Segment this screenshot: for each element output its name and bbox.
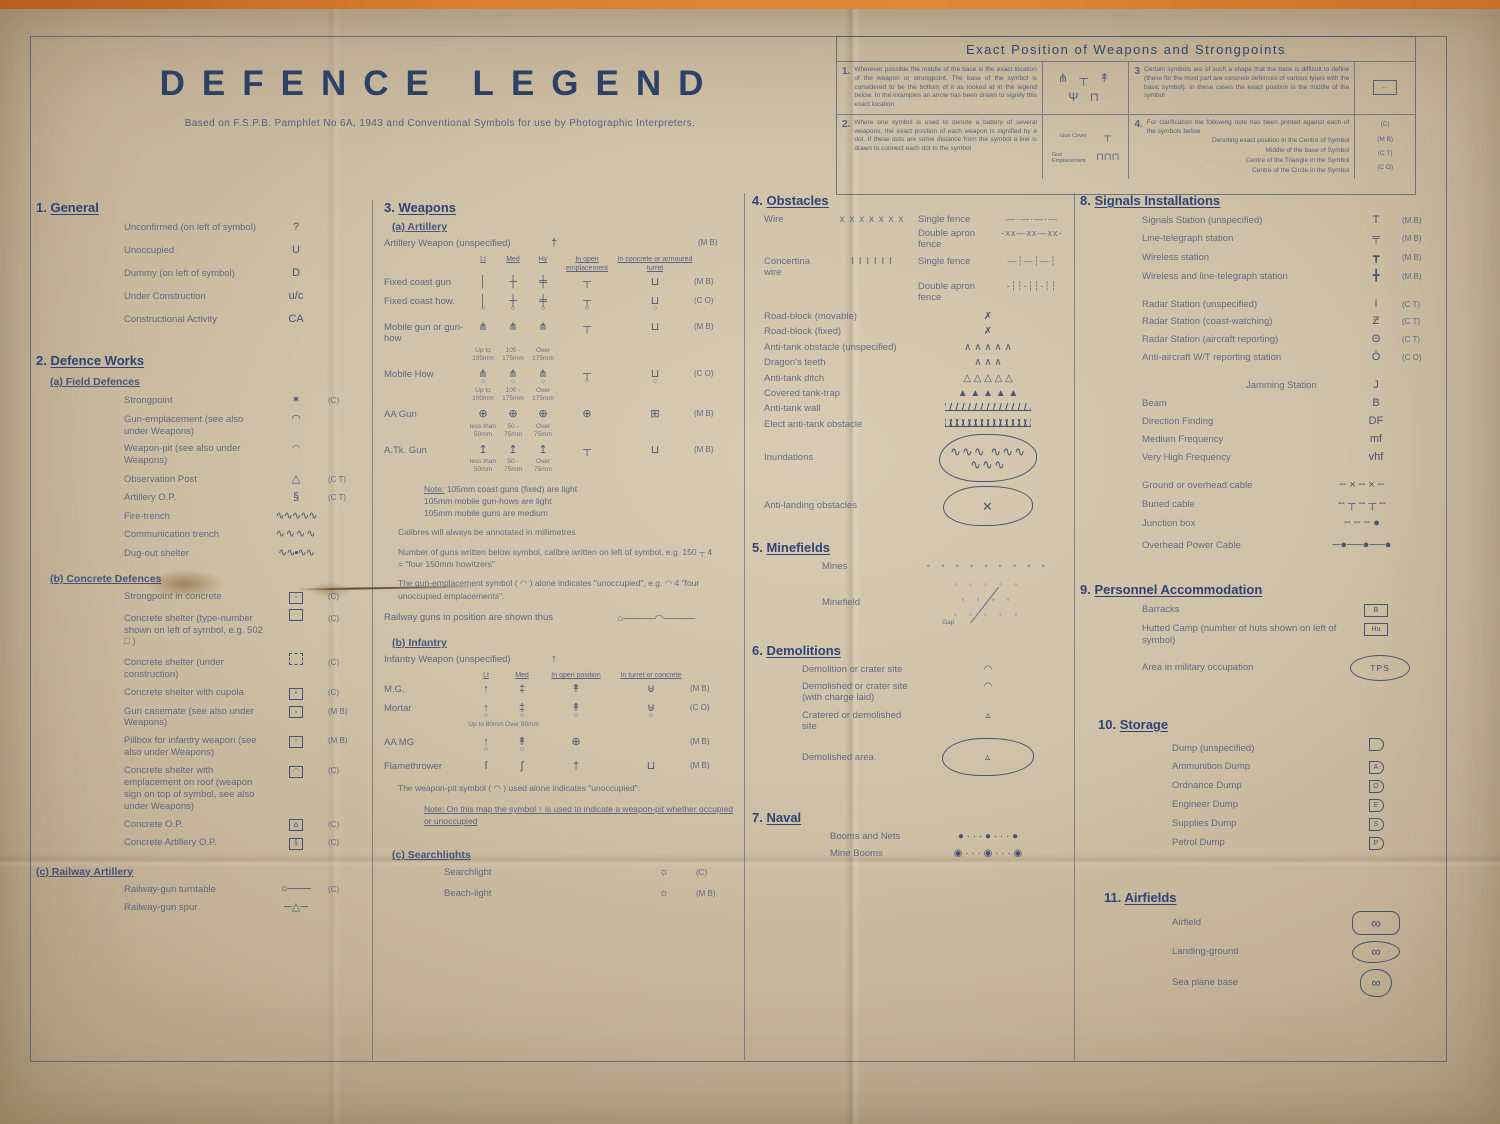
glyph-base: ○ [585,306,589,312]
section-number: 8. [1080,193,1091,208]
row-label: Concrete shelter with emplacement on roo… [124,765,264,813]
section-number: 10. [1098,717,1116,732]
mortar-turret-symbol: ⊎○ [612,703,690,719]
row-label: Railway-gun spur [124,902,264,914]
legend-row: Jamming StationJ [1080,379,1442,392]
row-symbol-cell [264,653,328,668]
glyph: ⊕ [538,409,547,420]
row-label: Line-telegraph station [1142,233,1350,245]
legend-row: BeamB [1080,397,1442,410]
row-code: (M B) [1402,253,1442,262]
glyph-base: ○ [653,379,657,385]
row-label: Petrol Dump [1172,837,1350,849]
dug-out-shelter-symbol: ∿∿▪∿∿ [264,546,328,559]
glyph-base: ○ [511,306,515,312]
legend-row: Covered tank-trap▲ ▲ ▲ ▲ ▲ [752,388,1068,399]
mg-med-symbol: ‡ [504,684,540,695]
mobile-how-hy-symbol: ⋔○ [528,369,558,385]
very-high-frequency-symbol: vhf [1350,451,1402,463]
legend-row: M.G.↑‡↟⊎(M B) [384,684,738,695]
column-divider-2 [744,193,745,1060]
mortar-open-symbol: ↟○ [540,703,612,719]
legend-row: AA Gun⊕⊕⊕⊕⊞(M B) [384,409,738,420]
title-block: DEFENCE LEGEND Based on F.S.P.B. Pamphle… [120,64,760,129]
booms-and-nets-symbol: ● · · · ● · · · ● [908,831,1068,842]
row-label: Concrete Artillery O.P. [124,837,264,849]
row-label: Demolished or crater site (with charge l… [802,681,908,704]
legend-row: Dragon's teeth∧ ∧ ∧ [752,357,1068,368]
calibre-label: 100 - 175mm [498,387,528,403]
legend-row: Communication trench∿∿∿∿ [36,527,370,541]
item-4-codes-cell: (C) (M B) (C T) (C O) [1355,115,1415,180]
row-symbol-cell: ∿∿∿ ∿∿∿ ∿∿∿ [908,434,1068,482]
legend-row: Concrete shelter (under construction)(C) [36,653,370,681]
calibre-label: 50 - 75mm [498,458,528,474]
calibre-label: less than 50mm [468,458,498,474]
row-symbol-cell: ▫ [264,590,328,604]
glyph: ⋔ [478,322,487,333]
legend-row: Dump (unspecified) [1080,738,1442,755]
exact-position-heading: Exact Position of Weapons and Strongpoin… [837,37,1415,62]
fixed-coast-how-med-symbol: ┼○ [498,296,528,312]
item-4-text: For clarification the following note has… [1147,119,1349,176]
exact-position-row-1: 1. Wherever possible the middle of the b… [837,62,1415,115]
column-signals-accommodation-storage-airfields: 8. Signals Installations Signals Station… [1080,193,1442,1002]
glyph: ⊔ [647,761,656,772]
legend-row: Radar Station (aircraft reporting)Θ(C T) [1080,333,1442,346]
section-title: Minefields [766,540,830,555]
legend-row: Artillery Weapon (unspecified)†(M B) [384,238,738,249]
section-title: Personnel Accommodation [1094,582,1262,597]
legend-row: Under Constructionu/c [36,290,370,303]
single-fence-label: Single fence [918,214,996,225]
flamethrower-med-symbol: ʃ [504,761,540,772]
hutted-camp-symbol: Hu [1364,623,1388,636]
legend-row: Concrete shelter (type-number shown on l… [36,609,370,649]
section-number: 7. [752,810,763,825]
glyph: ſ [485,761,487,772]
glyph: ⊔ [651,445,660,456]
calibre-label: Over 175mm [528,347,558,363]
glyph: ↥ [508,445,517,456]
glyph-base: ○ [541,306,545,312]
row-label: Dummy (on left of symbol) [124,268,264,280]
calibre-sub-labels: Up to 80mmOver 80mm [384,721,738,729]
row-code: (C T) [1402,317,1442,326]
legend-row: Railway-gun spur─△─ [36,900,370,914]
fire-trench-symbol: ∿∿∿∿∿ [264,509,328,522]
mine-booms-symbol: ◉ · · · ◉ · · · ◉ [908,848,1068,859]
landing-ground-symbol: ∞ [1352,941,1400,963]
fixed-coast-how-open-symbol: ┬○ [558,296,616,312]
glyph: ⋔ [508,322,517,333]
aa-mg-lt-symbol: ↑○ [468,737,504,753]
glyph-base: ○ [481,379,485,385]
subsection-infantry: (b) Infantry [392,637,738,649]
legend-row: Anti-tank wall [752,403,1068,414]
crater-with-charge-symbol: ◠ [908,681,1068,692]
airfield-symbol: ∞ [1352,911,1400,935]
legend-row: Observation Post△(C T) [36,472,370,486]
glyph: ⊎ [647,684,655,695]
row-label: Anti-aircraft W/T reporting station [1142,352,1350,364]
mines-symbol: ◦ ◦ ◦ ◦ ◦ ◦ ◦ ◦ ◦ [908,561,1068,572]
calibre-label: Up to 105mm [468,347,498,363]
glyph-base: ○ [511,379,515,385]
minefield-symbol: ◦ ◦ ◦ ◦ ◦ ◦ ◦ ◦ ◦ ◦ ◦ ◦ ◦ ◦ Gap [908,577,1068,629]
row-symbol-cell: › [264,705,328,719]
subsection-railway-artillery: (c) Railway Artillery [36,866,370,878]
legend-row: Fire-trench∿∿∿∿∿ [36,509,370,523]
legend-row: Ammunition DumpA [1080,760,1442,774]
column-divider-3 [1074,193,1075,1060]
radar-aircraft-reporting-symbol: Θ [1350,333,1402,345]
fixed-coast-gun-open-symbol: ┬ [558,277,616,288]
infantry-unspecified-symbol: ↑ [534,654,574,665]
legend-row: Mortar↑○‡○↟○⊎○(C O) [384,703,738,719]
legend-row: Engineer DumpE [1080,798,1442,812]
atk-gun-open-symbol: ┬ [558,445,616,456]
dragons-teeth-symbol: ∧ ∧ ∧ [908,357,1068,368]
calibre-label: Over 80mm [504,721,540,729]
gun-emplacement-row: Gun Emplacement⊓⊓⊓ [1052,152,1119,164]
glyph: ↥ [538,445,547,456]
jamming-station-symbol: J [1350,379,1402,391]
row-label: Strongpoint [124,395,264,407]
row-label: Concrete O.P. [124,819,264,831]
subsection-artillery: (a) Artillery [392,221,738,233]
row-label: Road-block (fixed) [764,326,908,337]
row-label: Dragon's teeth [764,357,908,368]
fixed-coast-how-turret-symbol: ⊔○ [616,296,694,312]
pillbox-symbol: ↑ [289,736,303,748]
row-code: (M B) [1402,234,1442,243]
wire-row: Wirex x x x x x xSingle fence—·—·—·— [752,214,1068,225]
anti-landing-obstacles-symbol: ✕ [943,486,1033,526]
legend-row: Ordnance DumpO [1080,779,1442,793]
column-header-med: Med [504,671,540,680]
mobile-how-med-symbol: ⋔○ [498,369,528,385]
row-symbol-cell: ∞ [1350,941,1402,963]
legend-row: Supplies DumpS [1080,817,1442,831]
railway-gun-in-position-symbol: ○────◠──── [574,612,738,625]
page-title: DEFENCE LEGEND [120,64,760,104]
position-code: (C T) [1378,149,1393,159]
glyph-base: ○ [520,747,524,753]
row-label: Radar Station (aircraft reporting) [1142,334,1350,346]
fixed-coast-how-hy-symbol: ╪○ [528,296,558,312]
calibre-label: Up to 80mm [468,721,504,729]
single-fence-symbol: —·—·—·— [996,214,1068,224]
double-apron-fence-label: Double apron fence [918,228,996,250]
glyph-base: ○ [520,713,524,719]
legend-row: Concrete shelter with emplacement on roo… [36,764,370,813]
row-symbol-cell: § [264,836,328,850]
exact-position-box: Exact Position of Weapons and Strongpoin… [836,36,1416,195]
beach-light-symbol: ☼ [632,887,696,899]
column-weapons: 3. Weapons (a) Artillery Artillery Weapo… [384,200,738,905]
legend-row: Flamethrowerſʃ†⊔(M B) [384,761,738,772]
photo-background-strip [0,0,1500,9]
inundations-symbol: ∿∿∿ ∿∿∿ ∿∿∿ [939,434,1037,482]
mine-dots-row: ◦ ◦ ◦ ◦ ◦ [908,607,1068,622]
item-3-text: Certain symbols are of such a shape that… [1144,66,1349,110]
legend-row: Unconfirmed (on left of symbol)? [36,221,370,234]
position-note-line: Centre of the Circle in the Symbol [1147,166,1349,176]
item-4-cell: 4. For clarification the following note … [1129,115,1355,180]
legend-row: BarracksB [1080,603,1442,617]
row-label: Wireless station [1142,252,1350,264]
row-label: Infantry Weapon (unspecified) [384,654,534,665]
barracks-symbol: B [1364,604,1388,617]
row-label: Searchlight [444,867,632,879]
legend-row: Petrol DumpP [1080,836,1442,850]
section-number: 9. [1080,582,1091,597]
row-code: (C) [328,592,370,601]
section-heading-personnel: 9. Personnel Accommodation [1080,582,1442,597]
row-symbol-cell: ✕ [908,486,1068,526]
shelter-roof-emplacement-symbol: ◠ [289,766,303,778]
legend-row: Mine Booms◉ · · · ◉ · · · ◉ [752,848,1068,859]
legend-row: Dug-out shelter∿∿▪∿∿ [36,546,370,560]
legend-row: Wireless station┳(M B) [1080,250,1442,264]
row-label: Buried cable [1142,499,1322,511]
row-label: Booms and Nets [830,831,908,842]
calibre-label: Over 175mm [528,387,558,403]
section-title: Airfields [1125,890,1177,905]
row-symbol-cell: Hu [1350,622,1402,636]
mine-dots-row: ◦ ◦ ◦ ◦ ◦ [908,577,1068,592]
gun-emplacement-label: Gun Emplacement [1052,152,1092,164]
sea-plane-base-symbol: ∞ [1360,969,1392,997]
subsection-concrete-defences: (b) Concrete Defences [50,573,370,585]
row-code: (M B) [696,889,738,898]
row-label: Sea plane base [1172,977,1350,989]
section-number: 4. [752,193,763,208]
section-number: 6. [752,643,763,658]
row-label: Road-block (movable) [764,311,908,322]
unoccupied-symbol: U [264,244,328,256]
row-label: Communication trench [124,529,264,541]
glyph: ⋔ [538,322,547,333]
glyph: ┼ [509,277,517,288]
glyph: ⊕ [508,409,517,420]
section-title: Obstacles [766,193,828,208]
calibre-label: Up to 100mm [468,387,498,403]
section-heading-defence-works: 2. Defence Works [36,353,370,368]
line-telegraph-station-symbol: ╤ [1350,232,1402,244]
section-number: 1. [36,200,47,215]
column-header-open-emplacement: In open emplacement [558,255,616,273]
mg-turret-symbol: ⊎ [612,684,690,695]
row-symbol-cell [264,609,328,624]
item-number: 3 [1134,66,1140,110]
row-label: Inundations [764,452,908,463]
glyph: ╪ [539,277,547,288]
page-subtitle: Based on F.S.P.B. Pamphlet No 6A, 1943 a… [120,118,760,129]
fixed-coast-gun-turret-symbol: ⊔ [616,277,694,288]
double-apron-fence-label: Double apron fence [918,281,996,303]
row-symbol-cell: A [1350,760,1402,774]
row-symbol-cell: ∞ [1350,969,1402,997]
position-code: (C) [1381,120,1390,130]
legend-row: Buried cable╌ ┬ ╌ ┬ ╌ [1080,497,1442,511]
legend-row: Beach-light☼(M B) [384,887,738,900]
row-label: Elect anti-tank obstacle [764,419,908,430]
calibre-sub-labels: Up to 100mm100 - 175mmOver 175mm [384,387,738,403]
glyph: ⊕ [571,737,580,748]
subsection-field-defences: (a) Field Defences [50,376,370,388]
gun-cover-row: Gun Cover┬ [1060,131,1111,142]
section-heading-weapons: 3. Weapons [384,200,738,215]
ground-overhead-cable-symbol: ╌ × ╌ × ╌ [1322,478,1402,491]
legend-row: Ground or overhead cable╌ × ╌ × ╌ [1080,478,1442,492]
engineer-dump-symbol: E [1369,799,1384,812]
legend-paper-sheet: DEFENCE LEGEND Based on F.S.P.B. Pamphle… [0,9,1500,1124]
legend-row: Demolished area▵ [752,738,1068,776]
row-code: (M B) [1402,272,1442,281]
section-title: General [50,200,98,215]
mobile-gun-lt-symbol: ⋔ [468,322,498,333]
row-label: Concrete shelter with cupola [124,687,264,699]
aa-wt-reporting-station-symbol: Ō [1350,351,1402,363]
row-label: Demolition or crater site [802,664,908,675]
glyph: ‡ [519,684,525,695]
row-code: (M B) [698,238,738,247]
section-title: Defence Works [50,353,144,368]
row-label: Jamming Station [1246,380,1350,392]
item-1-cell: 1. Wherever possible the middle of the b… [837,62,1043,114]
row-code: (C O) [694,369,734,378]
junction-box-symbol: ╌ ╌ ╌ ● [1322,516,1402,529]
row-label: AA MG [384,737,468,748]
section-heading-obstacles: 4. Obstacles [752,193,1068,208]
row-label: Ammunition Dump [1172,761,1350,773]
glyph: ↑ [483,684,489,695]
section-number: 5. [752,540,763,555]
row-label: Constructional Activity [124,314,264,326]
legend-row: Weapon-pit (see also under Weapons)◠ [36,443,370,467]
row-symbol-cell: B [1350,603,1402,617]
legend-row: Airfield∞ [1080,911,1442,935]
row-label: Barracks [1142,604,1350,616]
mobile-how-open-symbol: ┬○ [558,369,616,385]
row-code: (M B) [690,737,730,746]
railway-gun-spur-symbol: ─△─ [264,900,328,913]
row-label: Cratered or demolished site [802,710,908,733]
row-label: Landing-ground [1172,946,1350,958]
legend-row: Inundations∿∿∿ ∿∿∿ ∿∿∿ [752,434,1068,482]
section-number: 11. [1104,890,1121,905]
column-header-concrete-turret: In concrete or armoured turret [616,255,694,273]
calibre-label: 50 - 75mm [498,423,528,439]
row-code: (M B) [694,322,734,331]
row-code: (C O) [690,703,730,712]
row-label: Railway-gun turntable [124,884,264,896]
legend-row: Pillbox for infantry weapon (see also un… [36,734,370,759]
row-label: Anti-tank ditch [764,373,908,384]
row-label: Ordnance Dump [1172,780,1350,792]
row-label: Observation Post [124,474,264,486]
beam-symbol: B [1350,397,1402,409]
legend-row: Sea plane base∞ [1080,969,1442,997]
row-symbol-cell: P [1350,836,1402,850]
strongpoint-symbol: ✶ [264,393,328,406]
row-code: (C) [328,820,370,829]
calibre-sub-labels: less than 50mm50 - 75mmOver 75mm [384,458,738,474]
exact-position-row-2: 2. Where one symbol is used to denote a … [837,115,1415,180]
glyph-base: ○ [484,713,488,719]
concrete-shelter-symbol [289,609,303,621]
legend-row: Junction box╌ ╌ ╌ ● [1080,516,1442,530]
note-line: 105mm mobile gun-hows are light [424,496,552,506]
row-label: Mortar [384,703,468,714]
row-label: Direction Finding [1142,416,1350,428]
legend-row: Railway-gun turntable○───(C) [36,883,370,896]
section-title: Signals Installations [1094,193,1220,208]
anti-tank-wall-symbol [945,403,1031,411]
row-label: M.G. [384,684,468,695]
under-construction-symbol: u/c [264,290,328,302]
petrol-dump-symbol: P [1369,837,1384,850]
aa-gun-hy-symbol: ⊕ [528,409,558,420]
item-3-cell: 3 Certain symbols are of such a shape th… [1129,62,1355,114]
legend-row: A.Tk. Gun↥↥↥┬⊔(M B) [384,445,738,456]
mg-lt-symbol: ↑ [468,684,504,695]
row-label: Anti-tank obstacle (unspecified) [764,342,908,353]
section-heading-naval: 7. Naval [752,810,1068,825]
legend-row: Cratered or demolished site▵ [752,710,1068,733]
row-symbol-cell: • [264,686,328,700]
calibre-label: Over 75mm [528,423,558,439]
row-label: Medium Frequency [1142,434,1350,446]
item-1-text: Wherever possible the middle of the base… [854,66,1037,110]
item-number: 4. [1134,119,1142,176]
anti-tank-obstacle-symbol: ∧ ∧ ∧ ∧ ∧ [908,342,1068,353]
row-label: Airfield [1172,917,1350,929]
glyph: ⊞ [650,409,659,420]
position-code: (M B) [1377,135,1393,145]
row-label: Railway guns in position are shown thus [384,612,574,623]
row-label: Area in military occupation [1142,662,1350,674]
gun-emplacement-icon: ⊓⊓⊓ [1096,152,1119,163]
row-label: Artillery O.P. [124,492,264,504]
gun-cover-icon: ┬ [1104,131,1111,142]
note-line: 105mm mobile guns are medium [424,508,548,518]
weapon-pit-paragraph: The weapon-pit symbol ( ◠ ) used alone i… [398,782,718,794]
legend-row: UnoccupiedU [36,244,370,257]
calibre-label: Over 75mm [528,458,558,474]
glyph: ┬ [583,277,591,288]
wireless-station-symbol: ┳ [1350,250,1402,263]
atk-gun-turret-symbol: ⊔ [616,445,694,456]
legend-row: Booms and Nets● · · · ● · · · ● [752,831,1068,842]
mobile-gun-open-symbol: ┬ [558,322,616,333]
row-symbol-cell [908,403,1068,414]
electrified-anti-tank-obstacle-symbol [945,419,1031,427]
row-label: Minefield [822,597,908,608]
fixed-coast-gun-lt-symbol: │ [468,277,498,288]
item-2-symbols-cell: Gun Cover┬ Gun Emplacement⊓⊓⊓ [1043,115,1130,180]
row-code: (M B) [694,277,734,286]
concrete-shelter-cupola-symbol: • [289,688,303,700]
row-label: Concrete shelter (type-number shown on l… [124,613,264,649]
gun-emplacement-symbol: ◠ [264,412,328,425]
unconfirmed-symbol: ? [264,221,328,233]
subsection-searchlights: (c) Searchlights [392,849,738,861]
row-label: Under Construction [124,291,264,303]
legend-row: Minefield ◦ ◦ ◦ ◦ ◦ ◦ ◦ ◦ ◦ ◦ ◦ ◦ ◦ ◦ Ga… [752,577,1068,629]
